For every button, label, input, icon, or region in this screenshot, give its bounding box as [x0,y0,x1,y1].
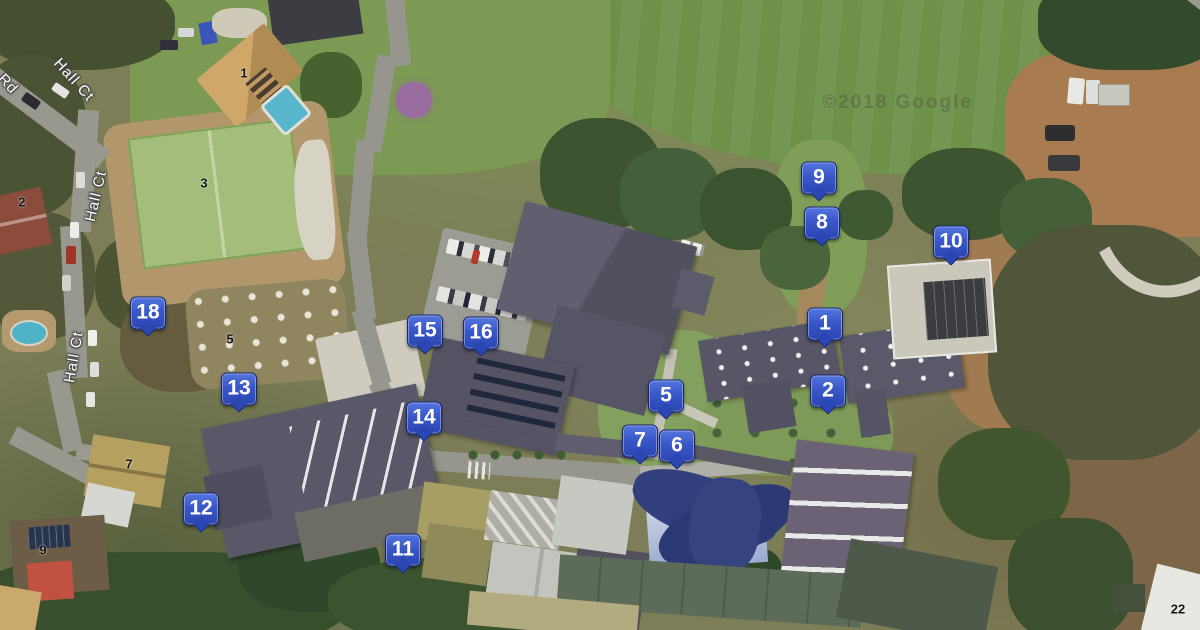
trees-top-right-corner [1038,0,1200,70]
shipping-container [1098,84,1130,106]
address-label-9: 9 [39,543,46,558]
tree-near-marker-8 [838,190,893,240]
car-hall-ct-8 [86,392,95,407]
imagery-watermark: ©2018 Google [822,92,973,114]
map-marker-16[interactable]: 16 [463,317,499,350]
green-roof-east [836,538,999,630]
map-marker-1[interactable]: 1 [807,308,843,341]
satellite-map: ©2018 Google RdHall CtHall CtHall Ct 123… [0,0,1200,630]
classroom-east-wing [855,388,891,438]
road-school-s4 [347,231,377,321]
pool-left [10,320,48,346]
map-marker-12[interactable]: 12 [183,493,219,526]
map-marker-18[interactable]: 18 [130,297,166,330]
address-label-2: 2 [18,195,25,210]
map-marker-2[interactable]: 2 [810,375,846,408]
car-hall-ct-5 [62,275,71,291]
car-top-left-white [178,28,194,37]
map-marker-10[interactable]: 10 [933,226,969,259]
map-marker-5[interactable]: 5 [648,380,684,413]
map-marker-8[interactable]: 8 [804,207,840,240]
classroom-west-wing [742,379,797,434]
van-construction-1 [1067,77,1085,104]
construction-dark-section [923,278,989,340]
address-label-22: 22 [1171,602,1185,617]
car-construction-dark-1 [1045,125,1075,141]
map-marker-15[interactable]: 15 [407,315,443,348]
car-top-left-dark [160,40,178,50]
light-awning-roof [551,475,635,555]
address-label-3: 3 [200,176,207,191]
sports-field [128,118,307,269]
address-label-7: 7 [125,457,132,472]
car-hall-ct-6 [88,330,97,346]
zebra-crossing [467,461,490,479]
house-9-solar-panels [27,525,70,550]
map-marker-7[interactable]: 7 [622,425,658,458]
address-label-1: 1 [240,66,247,81]
tree-purple-flowering [396,82,432,118]
truck-hall-ct-red [66,246,76,264]
car-hall-ct-3 [76,172,85,188]
car-hall-ct-7 [90,362,99,377]
dark-shed-bottom-right [1113,584,1145,612]
address-label-5: 5 [226,332,233,347]
car-hall-ct-4 [70,222,79,238]
map-marker-6[interactable]: 6 [659,430,695,463]
hedge-row-along-road [462,449,574,461]
map-marker-9[interactable]: 9 [801,162,837,195]
khaki-building-b [421,523,493,587]
trees-bottom-right-corner [1008,518,1133,630]
map-marker-14[interactable]: 14 [406,402,442,435]
map-marker-13[interactable]: 13 [221,373,257,406]
map-marker-11[interactable]: 11 [385,534,421,567]
car-construction-dark-2 [1048,155,1080,171]
corner-house-roof [0,584,42,630]
